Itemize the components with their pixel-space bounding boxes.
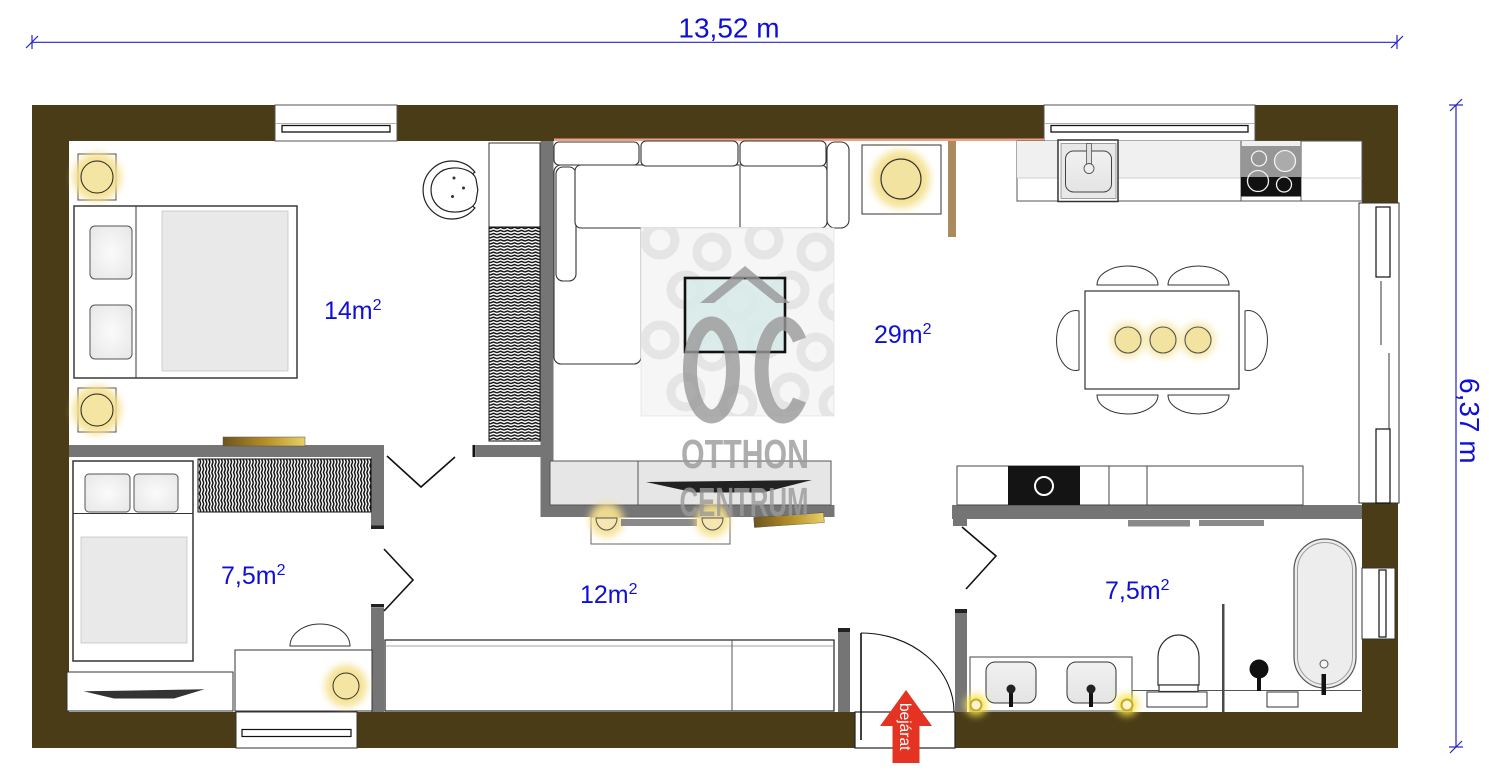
svg-text:OTTHON: OTTHON xyxy=(681,430,809,477)
svg-text:13,52 m: 13,52 m xyxy=(678,13,779,44)
svg-text:7,5m2: 7,5m2 xyxy=(221,562,286,590)
svg-text:6,37 m: 6,37 m xyxy=(1454,378,1485,464)
svg-text:CENTRUM: CENTRUM xyxy=(679,480,808,525)
svg-text:7,5m2: 7,5m2 xyxy=(1105,577,1170,605)
svg-text:bejárat: bejárat xyxy=(896,703,913,751)
